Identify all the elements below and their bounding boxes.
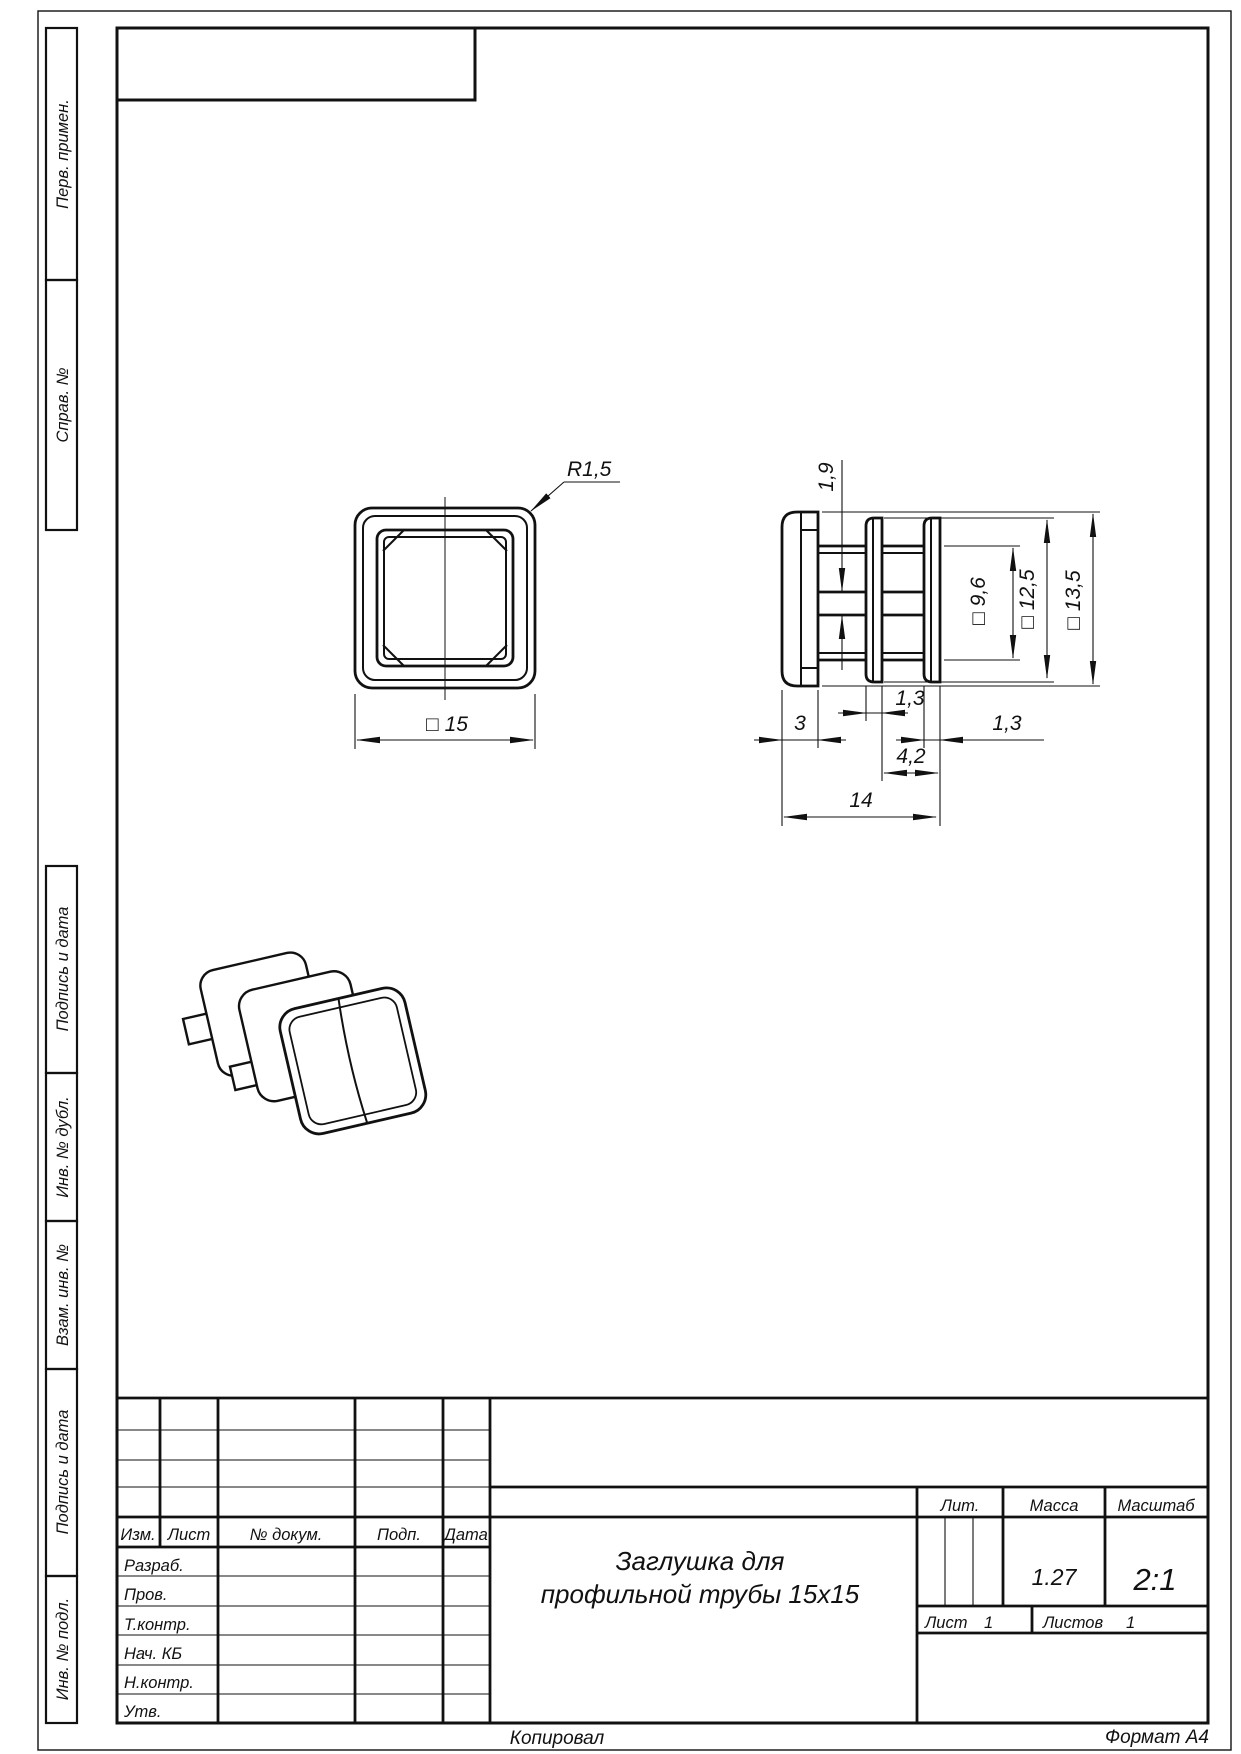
header-list: Лист [167,1526,210,1544]
format-note: Формат А4 [1105,1727,1209,1748]
scale-value: 2:1 [1132,1562,1176,1597]
drawing-sheet: Перв. примен. Справ. № Подпись и дата Ин… [0,0,1241,1754]
row-nach-kb: Нач. КБ [124,1645,182,1663]
header-podp: Подп. [377,1526,421,1544]
mass-label: Масса [1030,1497,1079,1515]
front-view-dim-lines [355,482,620,749]
side-view-part [782,512,940,686]
title-block-text: Изм. Лист № докум. Подп. Дата Разраб. Пр… [120,1497,1209,1749]
margin-label-sprav-no: Справ. № [54,367,72,442]
dim-corner-radius: R1,5 [567,458,612,481]
margin-label-perv-primen: Перв. примен. [54,99,72,209]
row-n-kontr: Н.контр. [124,1674,194,1692]
sheets-value: 1 [1126,1614,1135,1632]
dim-rib-thickness: 1,9 [815,462,838,492]
header-no-dokum: № докум. [250,1526,323,1544]
scale-label: Масштаб [1117,1497,1195,1515]
margin-label-podpis-data-lower: Подпись и дата [54,1410,72,1535]
dim-mid-flange-width: 1,3 [895,687,925,710]
sheets-label: Листов [1042,1614,1103,1632]
dim-outer-size: □ 15 [426,713,468,736]
side-view: 1,9 □ 9,6 □ 12,5 □ 13,5 1,3 3 1,3 4,2 14 [754,460,1100,826]
side-view-dim-lines [754,460,1100,826]
drawing-canvas: Перв. примен. Справ. № Подпись и дата Ин… [0,0,1241,1754]
copied-note: Копировал [510,1728,605,1749]
row-razrab: Разраб. [124,1557,184,1575]
dim-flange-span: 4,2 [896,745,926,768]
row-utv: Утв. [123,1703,162,1721]
dim-cap-square: □ 13,5 [1062,570,1085,630]
row-prov: Пров. [124,1586,168,1604]
isometric-view [174,930,430,1159]
part-name-line1: Заглушка для [616,1546,785,1576]
sheet-value: 1 [984,1614,993,1632]
dim-cap-depth: 3 [794,712,806,735]
margin-label-podpis-data-upper: Подпись и дата [54,907,72,1032]
margin-label-inv-podl: Инв. № подл. [54,1598,72,1700]
header-data: Дата [442,1526,488,1544]
part-name-line2: профильной трубы 15х15 [541,1579,860,1609]
margin-label-vzam-inv: Взам. инв. № [54,1244,72,1346]
margin-stamp-labels: Перв. примен. Справ. № Подпись и дата Ин… [54,99,72,1700]
header-izm: Изм. [120,1526,155,1544]
row-t-kontr: Т.контр. [124,1616,191,1634]
dim-inner-square: □ 9,6 [967,577,990,625]
dim-end-flange-width: 1,3 [992,712,1022,735]
front-view: R1,5 □ 15 [355,458,620,749]
sheet-label: Лист [924,1614,967,1632]
dim-total-length: 14 [849,789,872,812]
lit-label: Лит. [940,1497,980,1515]
margin-label-inv-dubl: Инв. № дубл. [54,1096,72,1197]
dim-flange-square: □ 12,5 [1016,569,1039,629]
mass-value: 1.27 [1032,1564,1078,1590]
